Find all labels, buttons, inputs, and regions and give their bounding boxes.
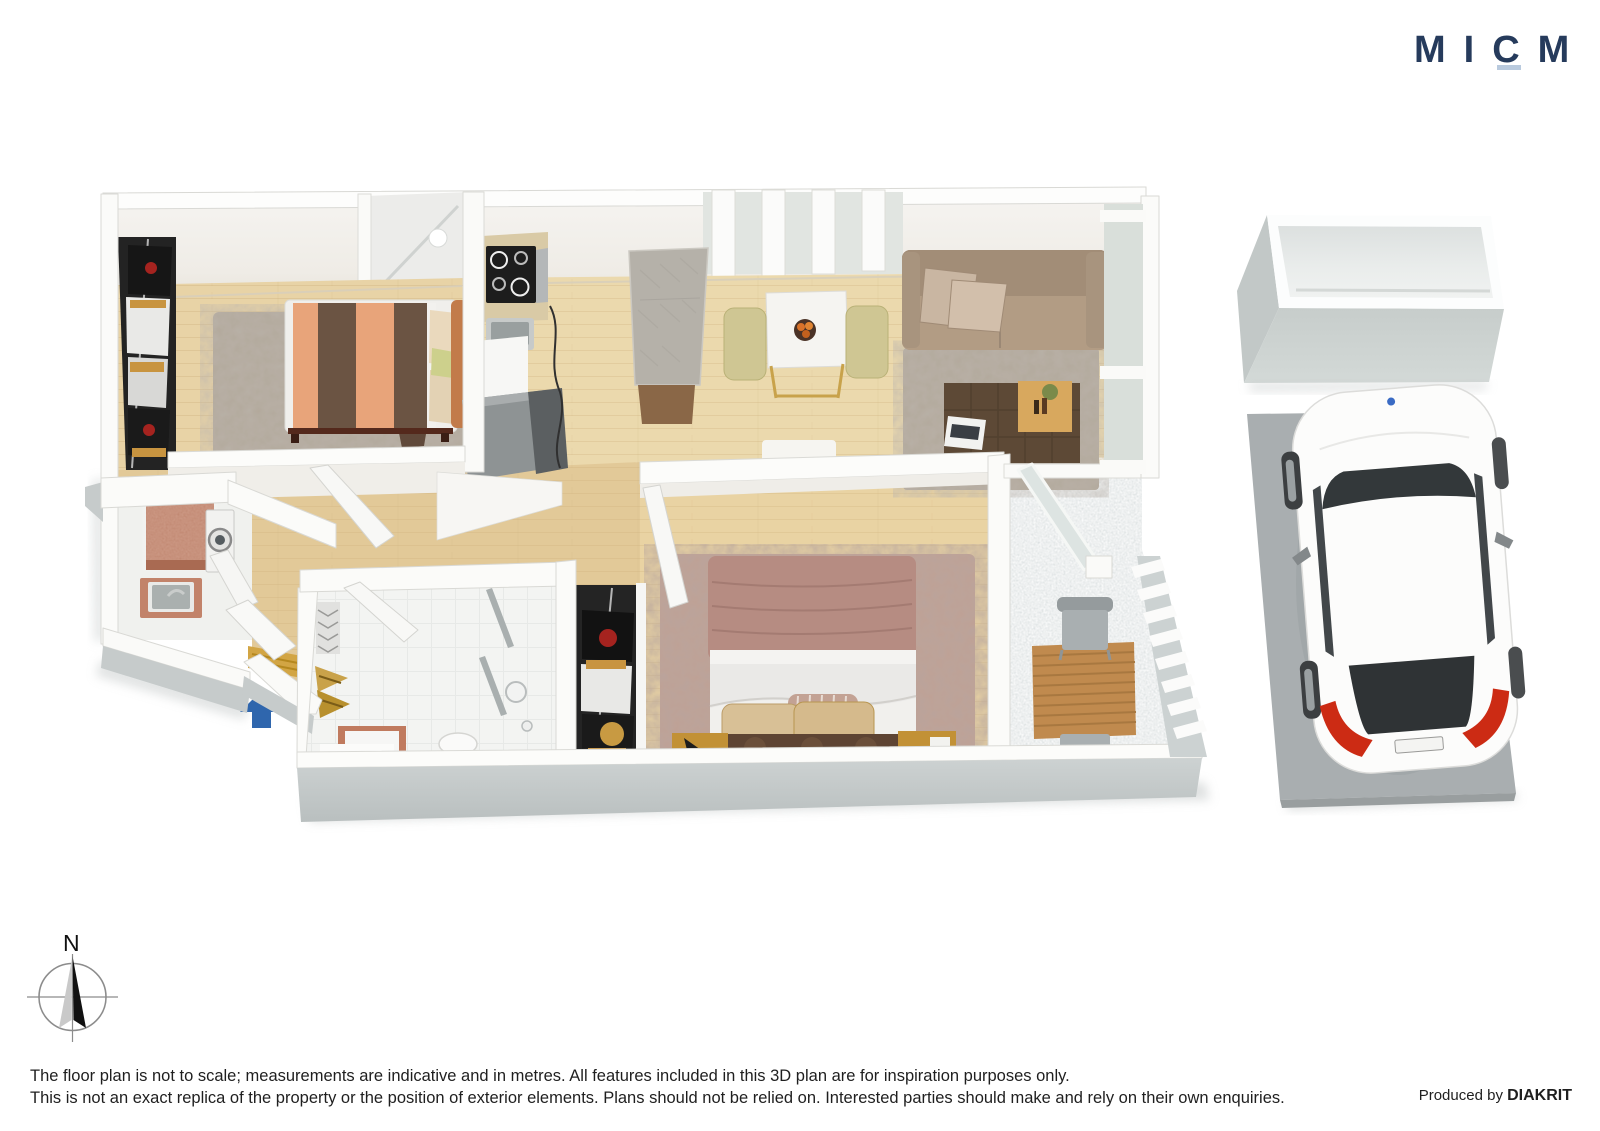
svg-text:N: N: [63, 930, 80, 956]
svg-text:The floor plan is not to scale: The floor plan is not to scale; measurem…: [30, 1067, 1070, 1085]
svg-text:Produced by DIAKRIT: Produced by DIAKRIT: [1419, 1087, 1573, 1104]
svg-text:This is not an exact replica o: This is not an exact replica of the prop…: [30, 1089, 1285, 1107]
svg-text:MICM: MICM: [1414, 29, 1587, 71]
